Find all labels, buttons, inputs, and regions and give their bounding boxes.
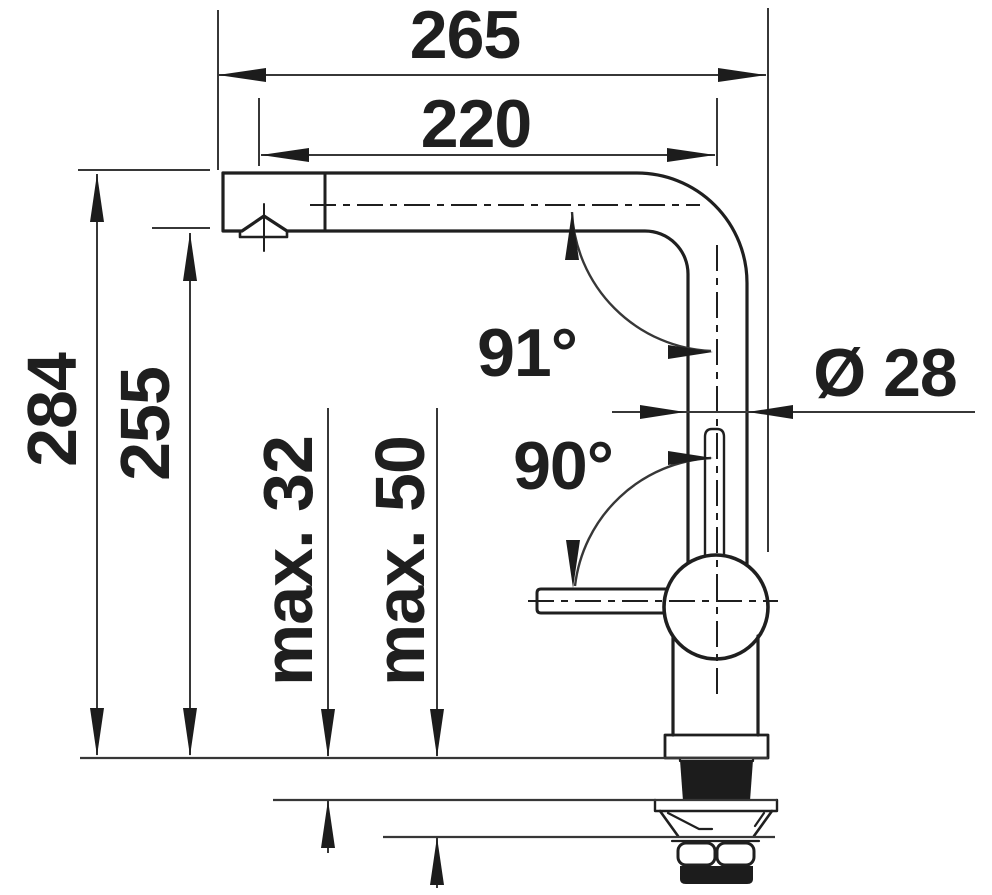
dim-overall-projection-label: 265 — [410, 0, 520, 73]
mounting-nut-right — [717, 843, 754, 865]
clamp-cone — [660, 811, 772, 836]
riser-tube — [705, 429, 724, 555]
arrow-255-top — [183, 233, 197, 281]
dim-overall-height-label: 284 — [13, 352, 91, 467]
mounting-nut-left — [678, 843, 715, 865]
base-flange — [665, 735, 768, 758]
dimension-labels: 265 220 284 255 max. 32 max. 50 91° 90° … — [13, 0, 957, 686]
clamp-fold-lines — [668, 813, 764, 829]
lever-handle — [537, 589, 668, 613]
reference-lines — [80, 758, 777, 837]
dim-spout-reach-label: 220 — [421, 86, 531, 162]
threaded-shank-upper — [680, 760, 753, 801]
arrow-255-bottom — [183, 708, 197, 756]
dim-base-angle-label: 90° — [513, 428, 613, 504]
arrow-91deg-up — [565, 212, 579, 260]
arrow-diameter-left — [640, 405, 685, 419]
arrow-diameter-right — [748, 405, 793, 419]
arrow-284-top — [90, 174, 104, 222]
arc-91deg — [572, 212, 711, 351]
arrow-90deg-right — [668, 451, 713, 465]
dim-max-counter-thickness-label: max. 32 — [249, 436, 327, 686]
arrow-265-right — [718, 68, 766, 82]
arrow-max32-down — [321, 709, 335, 757]
dim-spout-angle-label: 91° — [477, 315, 577, 391]
arrow-220-left — [261, 148, 309, 162]
arrow-220-right — [667, 148, 715, 162]
faucet-dimension-drawing: 265 220 284 255 max. 32 max. 50 91° 90° … — [0, 0, 992, 895]
arrow-91deg-right — [668, 345, 713, 359]
threaded-shank-lower — [680, 866, 753, 884]
dim-tube-diameter-label: Ø 28 — [813, 335, 956, 411]
arrow-284-bottom — [90, 708, 104, 756]
technical-drawing-canvas: 265 220 284 255 max. 32 max. 50 91° 90° … — [0, 0, 992, 895]
arrow-max32-up — [321, 800, 335, 848]
dim-outlet-height-label: 255 — [106, 367, 184, 481]
arrow-265-left — [218, 68, 266, 82]
arrow-max50-up — [430, 837, 444, 885]
dim-max-clamping-range-label: max. 50 — [361, 436, 439, 686]
arrow-max50-down — [430, 709, 444, 757]
mounting-plate — [655, 800, 777, 811]
arrow-90deg-down — [566, 540, 580, 588]
